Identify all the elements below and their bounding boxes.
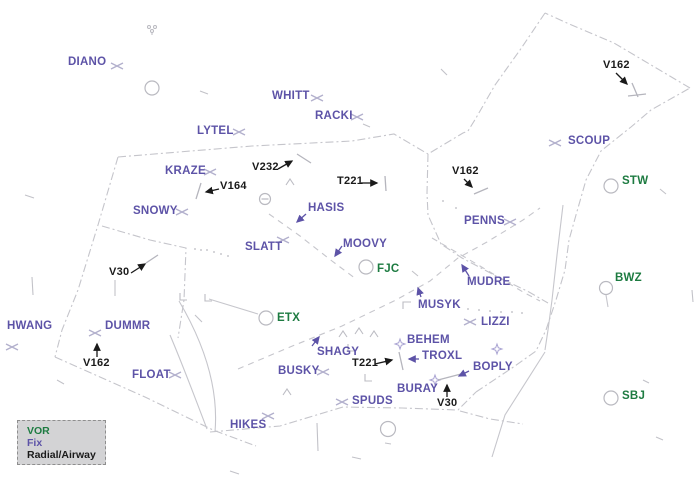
fix-label-whitt: WHITT	[272, 91, 310, 102]
fix-label-float: FLOAT	[132, 370, 171, 381]
fix-label-lizzi: LIZZI	[481, 317, 510, 328]
legend-item-radial: Radial/Airway	[27, 449, 105, 461]
vor-label-fjc: FJC	[377, 264, 399, 275]
fix-label-scoup: SCOUP	[568, 136, 610, 147]
fix-label-kraze: KRAZE	[165, 166, 206, 177]
fix-label-penns: PENNS	[464, 216, 505, 227]
fix-label-racki: RACKI	[315, 111, 353, 122]
radial-label-v164: V164	[220, 181, 247, 192]
fix-label-behem: BEHEM	[407, 335, 450, 346]
fix-label-lytel: LYTEL	[197, 126, 234, 137]
fix-label-diano: DIANO	[68, 57, 106, 68]
radial-label-v162: V162	[603, 60, 630, 71]
legend-item-fix: Fix	[27, 437, 105, 449]
fix-label-boply: BOPLY	[473, 362, 513, 373]
map-labels: DIANOWHITTRACKILYTELKRAZESNOWYHASISSLATT…	[0, 0, 700, 479]
aviation-chart: DIANOWHITTRACKILYTELKRAZESNOWYHASISSLATT…	[0, 0, 700, 479]
vor-label-stw: STW	[622, 176, 648, 187]
vor-label-sbj: SBJ	[622, 391, 645, 402]
fix-label-mudre: MUDRE	[467, 277, 510, 288]
fix-label-hasis: HASIS	[308, 203, 344, 214]
radial-label-v162: V162	[83, 358, 110, 369]
legend: VOR Fix Radial/Airway	[17, 420, 106, 465]
vor-label-etx: ETX	[277, 313, 300, 324]
radial-label-t221: T221	[337, 176, 363, 187]
radial-label-t221: T221	[352, 358, 378, 369]
fix-label-busky: BUSKY	[278, 366, 320, 377]
fix-label-snowy: SNOWY	[133, 206, 178, 217]
radial-label-v232: V232	[252, 162, 279, 173]
fix-label-troxl: TROXL	[422, 351, 462, 362]
fix-label-musyk: MUSYK	[418, 300, 461, 311]
vor-label-bwz: BWZ	[615, 273, 642, 284]
fix-label-hwang: HWANG	[7, 321, 52, 332]
fix-label-moovy: MOOVY	[343, 239, 387, 250]
fix-label-slatt: SLATT	[245, 242, 282, 253]
fix-label-buray: BURAY	[397, 384, 438, 395]
radial-label-v30: V30	[109, 267, 129, 278]
fix-label-hikes: HIKES	[230, 420, 266, 431]
radial-label-v30: V30	[437, 398, 457, 409]
fix-label-dummr: DUMMR	[105, 321, 150, 332]
radial-label-v162: V162	[452, 166, 479, 177]
fix-label-spuds: SPUDS	[352, 396, 393, 407]
legend-item-vor: VOR	[27, 425, 105, 437]
